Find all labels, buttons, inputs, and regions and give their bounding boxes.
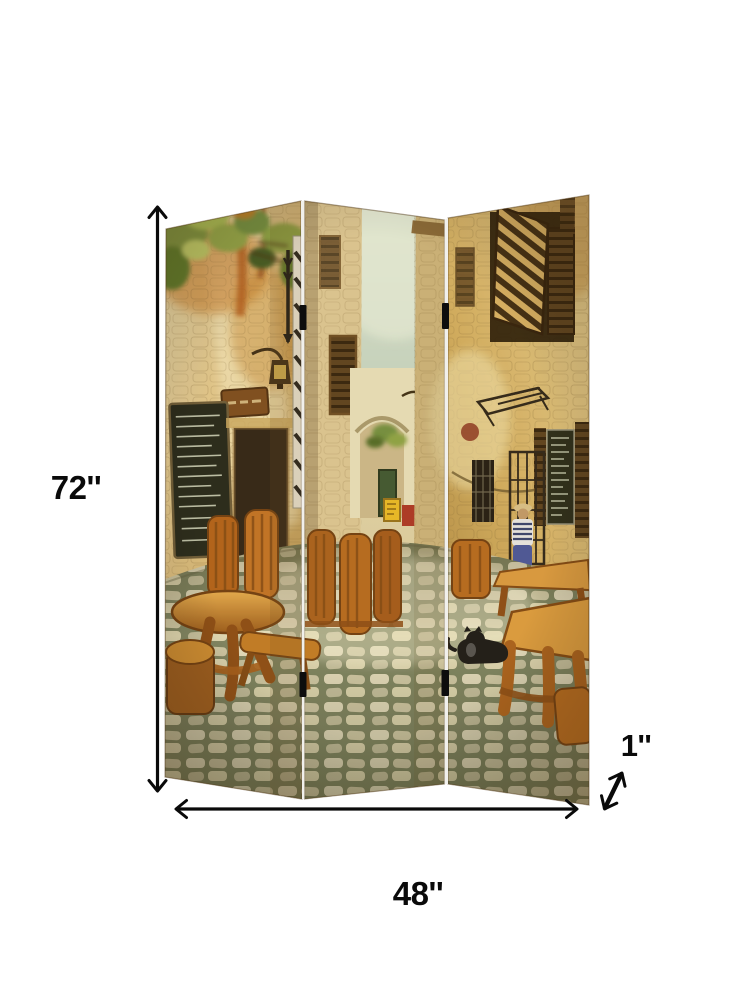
- width-dimension-label: 48'': [366, 877, 470, 910]
- depth-dimension-label: 1'': [600, 730, 672, 761]
- panel-artwork: [150, 160, 610, 815]
- depth-arrow: [605, 774, 622, 808]
- height-dimension-label: 72'': [28, 471, 124, 504]
- product-dimension-image: 72'' 48'' 1'': [0, 0, 750, 1000]
